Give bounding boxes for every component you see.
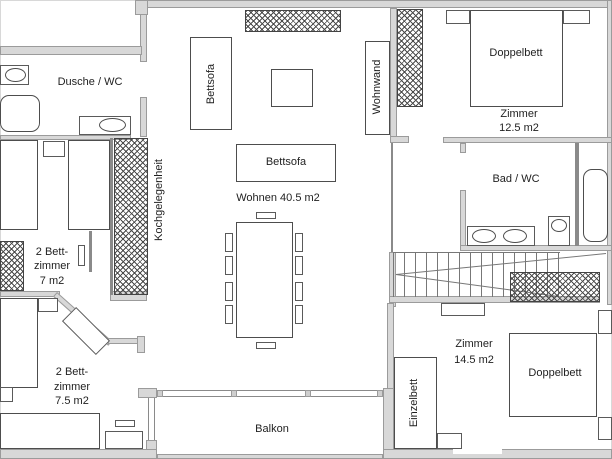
chair [225,233,233,252]
window-mullion [305,390,311,397]
sink-basin [472,229,496,243]
window-mullion [231,390,237,397]
bed [0,140,38,230]
chair [225,305,233,324]
wall-hall-rail [391,143,393,252]
bottom-wall-door-gap [453,449,502,454]
wall-room125-bottom [443,137,612,143]
furniture-label-sofa-bed-center: Bettsofa [266,156,306,168]
wall-bedroom75-diag-foot [108,338,140,344]
nightstand [437,433,462,449]
furniture-label-double-bed-top: Doppelbett [489,47,542,59]
wardrobe-living-top [245,10,341,32]
sink-basin [99,118,126,132]
balcony-window-band [157,390,383,397]
balcony-left-door [148,398,155,440]
wall-living-right [390,8,397,143]
room-label-bedroom7-line1: 2 Bett- [36,246,68,258]
bed [0,298,38,388]
sink-basin [503,229,527,243]
sideboard [441,303,485,316]
room-label-room125-line2: 12.5 m2 [499,122,539,134]
wall-bedroom7-lower-line [89,231,92,272]
wardrobe-bedroom7 [0,241,24,291]
furniture-label-sofa-bed-left: Bettsofa [205,64,217,104]
wall-balcony-railing [157,454,383,459]
window-mullion [157,390,163,397]
room-label-room125-line1: Zimmer [500,108,537,120]
bed [68,140,110,230]
kitchenette-unit [114,138,148,295]
wall-bedroom75-endcap [137,336,145,353]
wall-living-right-foot [390,136,409,143]
door-leaf-diagonal [62,307,110,355]
wall-bath-left [460,190,466,248]
wardrobe-stairs [510,272,600,302]
furniture-label-double-bed-bottom: Doppelbett [528,367,581,379]
bathtub [583,169,608,242]
chair [256,212,276,219]
room-label-bedroom75-line1: 2 Bett- [56,366,88,378]
wall-bath-tub-partition [575,143,579,246]
wall-balcony-left-top [138,388,157,398]
chair [225,282,233,301]
room-label-living: Wohnen 40.5 m2 [236,192,320,204]
nightstand [446,10,470,24]
wall-room125-stub [460,143,466,153]
chair [295,282,303,301]
room-label-bedroom75-line2: zimmer [54,381,90,393]
dining-table [236,222,293,338]
wall-right [607,0,612,305]
chair [295,305,303,324]
bed [0,413,100,449]
wall-bedroom7-right-line [110,138,113,295]
floor-plan: Dusche / WC Bettsofa Bettsofa Wohnwand W… [0,0,612,459]
nightstand [598,310,612,334]
furniture-label-wall-unit: Wohnwand [371,60,383,115]
nightstand [598,417,612,440]
shelf [115,420,135,427]
wall-bedroom75-top [0,291,60,297]
nightstand [105,431,143,449]
room-label-room145-line2: 14.5 m2 [454,354,494,366]
chair [295,256,303,275]
room-label-bedroom7-line3: 7 m2 [40,275,64,287]
room-label-room145-line1: Zimmer [455,338,492,350]
window-mullion [377,390,383,397]
chair [225,256,233,275]
shower [0,95,40,132]
wall-top [136,0,612,8]
chair [295,233,303,252]
wall-entry-step [135,0,148,15]
toilet-bowl [551,219,567,232]
room-label-bedroom75-line3: 7.5 m2 [55,395,89,407]
wall-showerroom-right [140,97,147,137]
room-label-balcony: Balkon [255,423,289,435]
furniture-label-single-bed: Einzelbett [408,379,420,427]
room-label-bedroom7-line2: zimmer [34,260,70,272]
pillow [0,387,13,402]
wall-bottom-left [0,449,157,459]
toilet-bowl [5,68,26,82]
nightstand [563,10,590,24]
side-table [271,69,313,107]
wardrobe-room125 [397,9,423,107]
wall-entry-horizontal [0,46,142,55]
nightstand [43,141,65,157]
room-label-kitchenette: Kochgelegenheit [153,159,165,241]
chair [256,342,276,349]
room-label-bath-wc: Bad / WC [492,173,539,185]
pillow [38,298,58,312]
door-leaf [78,245,85,266]
room-label-shower-wc: Dusche / WC [58,76,123,88]
